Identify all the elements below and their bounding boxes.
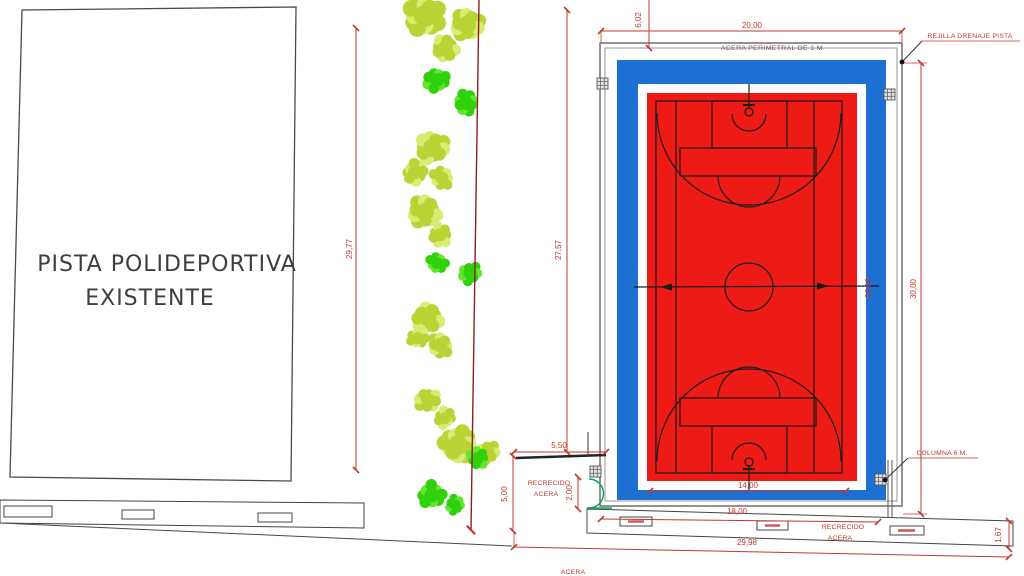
acera-street-label: ACERA [561, 569, 586, 576]
dim-new-left-height: 27,57 [554, 239, 563, 260]
columna-label: COLUMNA 6 M. [916, 450, 967, 457]
recrecido-wall [516, 455, 606, 458]
tree-foliage [433, 338, 447, 352]
site-plan: PISTA POLIDEPORTIVA EXISTENTE [0, 0, 1024, 576]
left-sidewalk-outline [0, 500, 364, 528]
recrecido-left-line2: ACERA [534, 491, 559, 498]
tree-foliage [408, 165, 422, 179]
dim-top-offset: 6,02 [634, 12, 643, 28]
dim-existing-height: 29,77 [345, 238, 354, 259]
columna-leader-dot [883, 478, 888, 483]
existing-court-title-line2: EXISTENTE [85, 286, 215, 311]
dim-total-width: 29,98 [737, 538, 758, 547]
acera-perimetral-label: ACERA PERIMETRAL DE 1 M. [721, 45, 825, 52]
dim-top-width: 20,00 [742, 21, 763, 30]
tree-foliage [414, 5, 436, 27]
dim-walk-right: 1,67 [994, 527, 1003, 543]
existing-court-outline [10, 7, 296, 481]
dim-recrecido-width: 5,50 [551, 441, 567, 450]
recrecido-right-line2: ACERA [828, 535, 853, 542]
tree-foliage [439, 412, 451, 424]
tree-foliage [458, 16, 476, 34]
bench-block [258, 513, 292, 522]
new-court-enclosure [516, 43, 902, 531]
recrecido-right-line1: RECRECIDO [822, 524, 865, 531]
rejilla-leader-dot [900, 60, 905, 65]
drain-grate-icon [884, 89, 895, 100]
tree-foliage [436, 172, 449, 185]
tree-foliage [412, 332, 424, 344]
dim-line-total-width [514, 547, 1009, 557]
tree-foliage [421, 393, 435, 407]
drain-grate-icon [597, 78, 608, 89]
dim-enclosure-height: 30,00 [909, 278, 918, 299]
rejilla-leader [903, 41, 922, 61]
tree-foliage [416, 203, 434, 221]
tree-foliage [430, 73, 444, 87]
bottom-sidewalk [587, 509, 1013, 546]
existing-court: PISTA POLIDEPORTIVA EXISTENTE [10, 7, 297, 481]
tree-row [402, 0, 500, 516]
dim-recrecido-height: 5,00 [500, 486, 509, 502]
tree-foliage [425, 488, 440, 503]
dim-gate-height: 2,00 [565, 485, 574, 501]
dim-court-width: 14,00 [738, 481, 759, 490]
recrecido-left-line1: RECRECIDO [528, 480, 571, 487]
rejilla-label: REJILLA DRENAJE PISTA [927, 33, 1013, 40]
bench-block [4, 506, 52, 517]
bottom-sidewalk-outline [587, 509, 1013, 546]
tree-foliage [434, 229, 447, 242]
bench-block [122, 510, 154, 519]
tree-foliage [431, 257, 443, 269]
tree-foliage [459, 96, 473, 110]
left-sidewalk [0, 500, 512, 546]
existing-court-title-line1: PISTA POLIDEPORTIVA [37, 252, 297, 277]
tree-foliage [472, 452, 484, 464]
dim-walk-bottom: 18,00 [727, 507, 748, 516]
drain-grate-icon [590, 466, 601, 477]
dim-court-length: 26,00 [864, 277, 873, 298]
tree-foliage [423, 139, 441, 157]
tree-foliage [420, 310, 437, 327]
tree-foliage [448, 435, 468, 455]
tree-foliage [438, 41, 453, 56]
tree-foliage [450, 500, 461, 511]
